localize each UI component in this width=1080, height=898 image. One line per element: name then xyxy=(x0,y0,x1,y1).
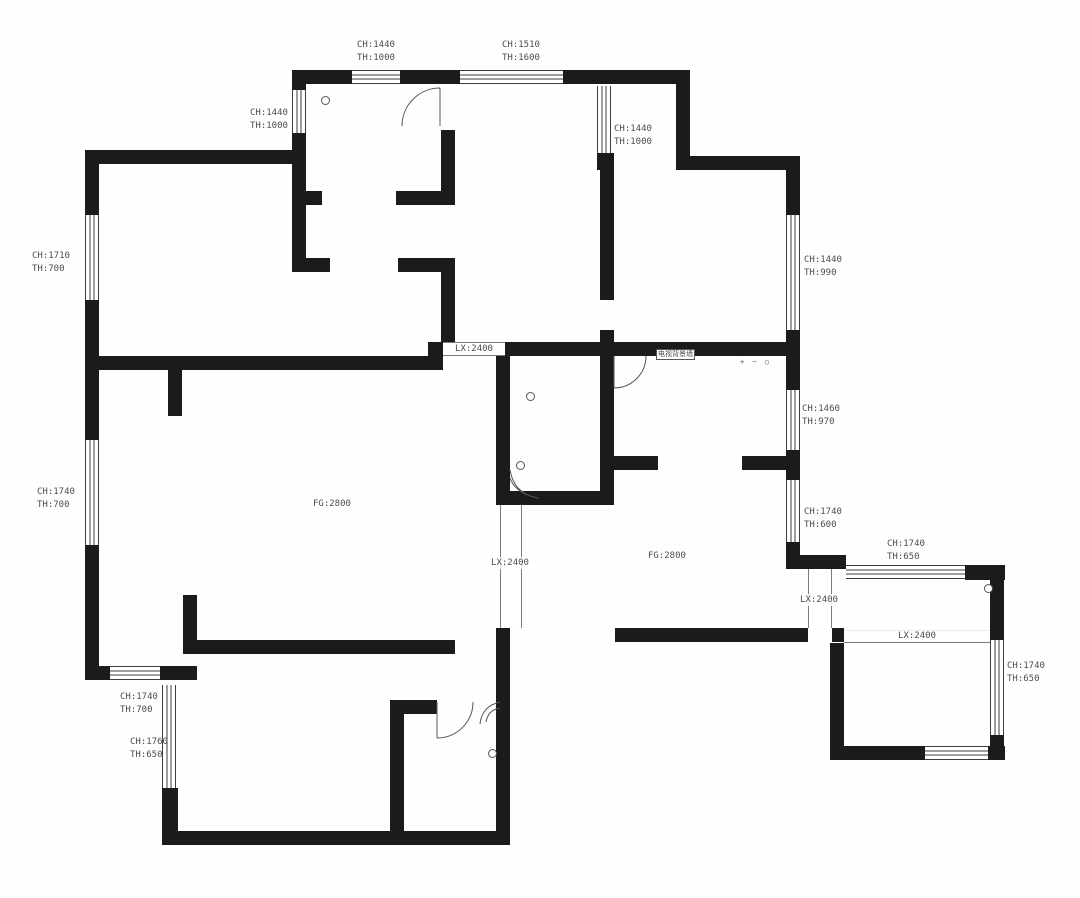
room-height-label: FG:2800 xyxy=(313,498,351,511)
window-br-right xyxy=(990,640,1004,735)
wall-segment xyxy=(496,628,510,845)
window-label: CH:1440 TH:990 xyxy=(804,254,842,280)
ceiling-light-icon xyxy=(321,96,330,105)
wall-segment xyxy=(292,70,306,90)
window-label: CH:1740 TH:600 xyxy=(804,506,842,532)
wall-segment xyxy=(306,191,322,205)
wall-segment xyxy=(830,746,925,760)
window-right-2 xyxy=(786,390,800,450)
wall-segment xyxy=(428,342,443,356)
wall-segment xyxy=(85,666,110,680)
room-height-label: FG:2800 xyxy=(648,550,686,563)
wall-segment xyxy=(162,788,178,831)
ceiling-light-icon xyxy=(488,749,497,758)
wall-segment xyxy=(600,156,614,300)
wall-segment xyxy=(615,628,808,642)
ceiling-light-icon xyxy=(516,461,525,470)
wall-segment xyxy=(390,714,404,831)
wall-segment xyxy=(398,258,441,272)
wall-segment xyxy=(830,643,844,760)
tv-wall-tag: 电视背景墙 xyxy=(656,349,695,360)
window-label: CH:1440 TH:1000 xyxy=(614,123,652,149)
wall-segment xyxy=(85,545,99,666)
wall-segment xyxy=(832,628,844,642)
window-br-top xyxy=(846,565,965,579)
corner-basin-icon xyxy=(478,700,502,726)
wall-segment xyxy=(965,565,1005,580)
wall-segment xyxy=(496,356,510,505)
window-top-2 xyxy=(460,70,563,84)
window-label: CH:1760 TH:650 xyxy=(130,736,168,762)
window-top-1 xyxy=(352,70,400,84)
window-label: CH:1740 TH:700 xyxy=(120,691,158,717)
wall-segment xyxy=(608,456,658,470)
window-label: CH:1440 TH:1000 xyxy=(357,39,395,65)
window-left-2 xyxy=(85,440,99,545)
wall-segment xyxy=(676,156,800,170)
wall-segment xyxy=(183,595,197,654)
wall-segment xyxy=(197,640,455,654)
wall-segment xyxy=(786,330,800,390)
opening-label: LX:2400 xyxy=(484,557,536,569)
wall-segment xyxy=(786,156,800,215)
wall-segment xyxy=(85,164,99,215)
window-label: CH:1510 TH:1600 xyxy=(502,39,540,65)
ceiling-light-icon xyxy=(984,584,993,593)
wall-segment xyxy=(505,342,800,356)
wall-segment xyxy=(292,164,306,272)
window-bl-horiz xyxy=(110,666,160,680)
window-label: CH:1740 TH:650 xyxy=(887,538,925,564)
wall-segment xyxy=(786,555,846,569)
wall-segment xyxy=(160,666,197,680)
wall-segment xyxy=(85,150,306,164)
wall-segment xyxy=(742,456,786,470)
window-left-1 xyxy=(85,215,99,300)
wall-segment xyxy=(676,70,690,170)
wall-segment xyxy=(563,70,690,84)
wall-segment xyxy=(396,191,455,205)
window-right-3 xyxy=(786,480,800,542)
opening-label: LX:2400 xyxy=(443,343,505,355)
wall-segment xyxy=(400,70,460,84)
wall-segment xyxy=(162,831,510,845)
shower-corner-icon xyxy=(510,466,540,500)
window-label: CH:1440 TH:1000 xyxy=(250,107,288,133)
window-right-1 xyxy=(786,215,800,330)
wall-segment xyxy=(85,300,99,440)
window-label: CH:1740 TH:700 xyxy=(37,486,75,512)
window-label: CH:1460 TH:970 xyxy=(802,403,840,429)
opening-label: LX:2400 xyxy=(789,594,849,606)
wall-segment xyxy=(85,356,443,370)
window-nook xyxy=(597,86,611,153)
wall-segment xyxy=(600,330,614,505)
floor-plan: CH:1440 TH:1000 CH:1510 TH:1600 CH:1440 … xyxy=(0,0,1080,898)
wall-segment xyxy=(988,746,1005,760)
wall-segment xyxy=(292,258,330,272)
window-label: CH:1740 TH:650 xyxy=(1007,660,1045,686)
wall-segment xyxy=(168,370,182,416)
wall-segment xyxy=(390,700,437,714)
window-br-bottom xyxy=(925,746,988,760)
door-arc-icon xyxy=(437,702,473,738)
door-arc-icon xyxy=(402,88,442,128)
window-upper-left xyxy=(292,90,306,133)
wall-segment xyxy=(786,450,800,480)
electrical-symbols: + ~ ○ xyxy=(740,358,771,366)
ceiling-light-icon xyxy=(526,392,535,401)
window-label: CH:1710 TH:700 xyxy=(32,250,70,276)
opening-label: LX:2400 xyxy=(844,630,990,642)
door-arc-icon xyxy=(614,356,646,388)
